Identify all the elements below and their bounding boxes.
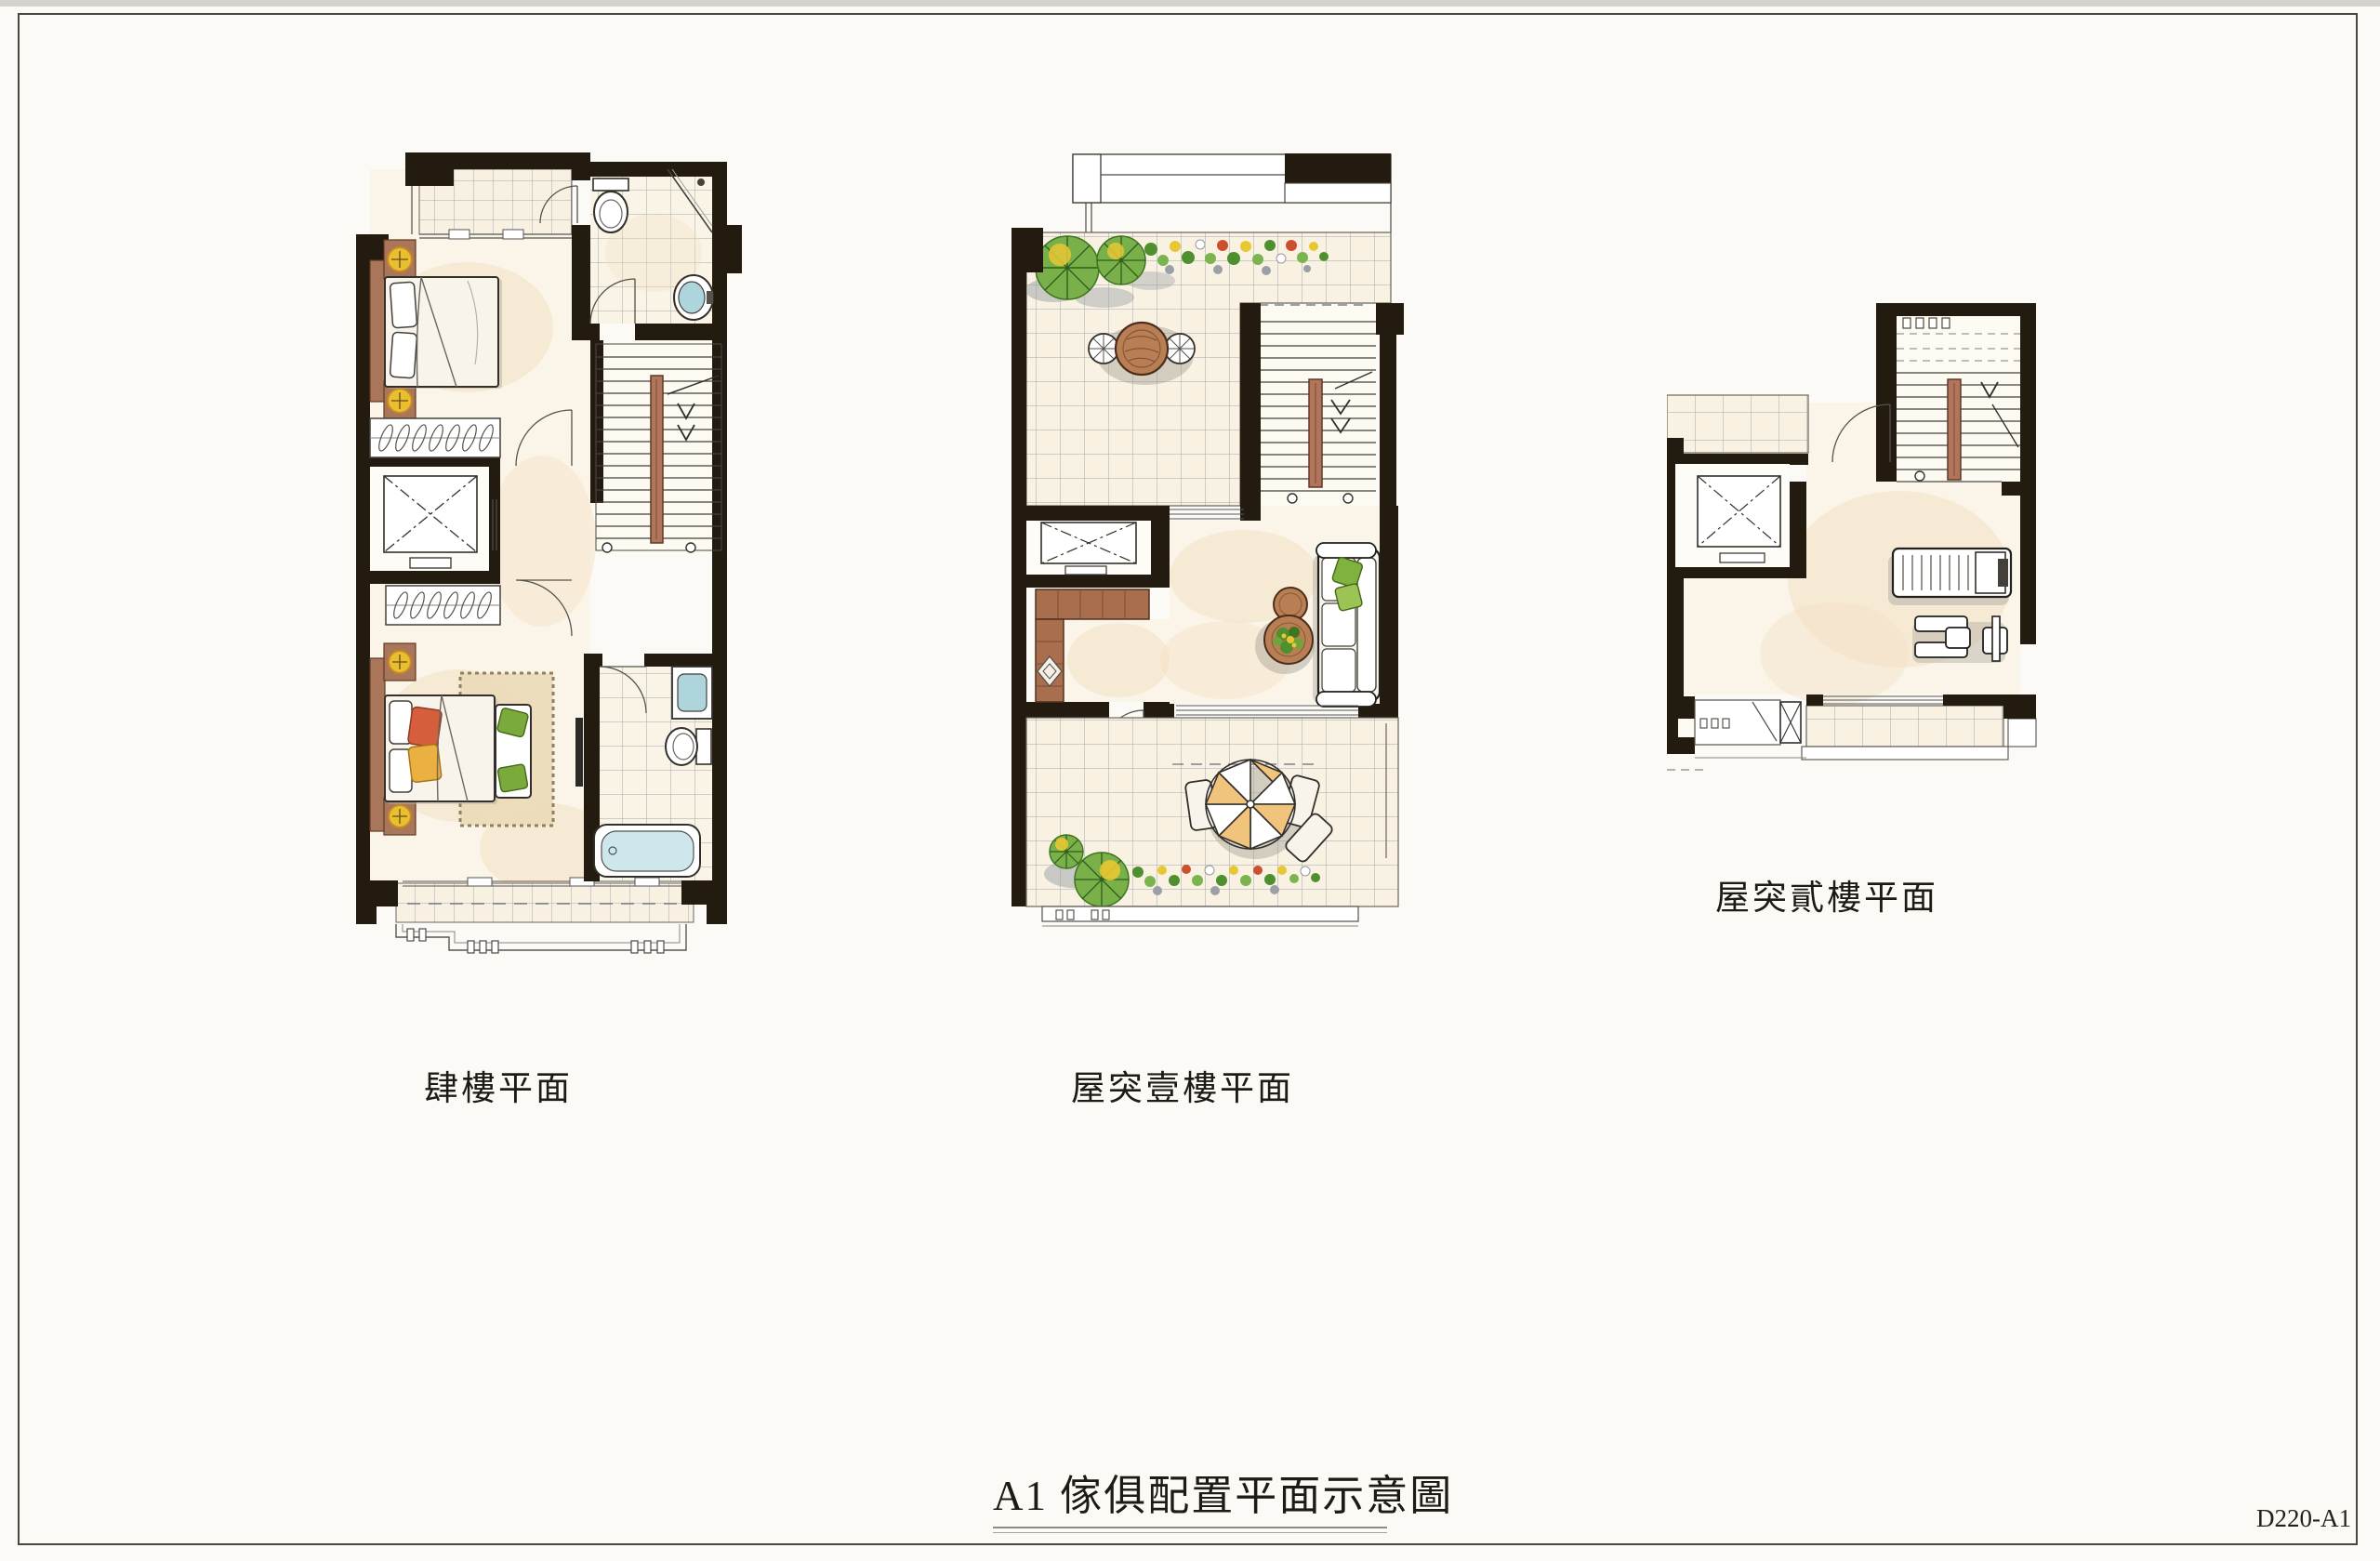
sofa-icon — [1313, 543, 1380, 707]
plan-label-roof2: 屋突貳樓平面 — [1655, 869, 1999, 919]
roof-terrace-left — [1667, 395, 1808, 453]
scan-artifact-strip — [0, 0, 2380, 7]
pillow-green — [1334, 583, 1362, 611]
bench — [496, 705, 531, 798]
closet-icon — [370, 418, 500, 457]
pillow-red — [407, 707, 442, 747]
roof-parapet-bottom — [1042, 906, 1358, 926]
scanned-floorplan-sheet: { "page": { "background": "#fbfaf6", "fr… — [0, 0, 2380, 1561]
floorplan-4f — [356, 141, 756, 967]
living-room — [1160, 506, 1380, 707]
sheet-title-block: A1 傢俱配置平面示意圖 — [993, 1462, 1387, 1533]
toilet-icon — [593, 179, 628, 232]
closet-icon — [386, 586, 500, 625]
stairs-icon — [1897, 316, 2020, 482]
plan-label-4f: 肆樓平面 — [359, 1060, 638, 1110]
elevator-icon — [370, 467, 496, 571]
headboard — [370, 658, 385, 831]
elevator-icon — [1026, 521, 1151, 575]
sliding-door — [1170, 509, 1244, 519]
title-underline — [993, 1527, 1387, 1533]
vanity-sink-icon — [672, 667, 712, 719]
pillow-yellow — [408, 744, 442, 783]
tv-icon — [575, 718, 583, 787]
treadmill-icon — [1888, 549, 2011, 605]
plan-label-roof1: 屋突壹樓平面 — [1011, 1060, 1355, 1110]
bed — [385, 277, 502, 389]
bed — [385, 695, 497, 804]
sink-icon — [674, 275, 713, 320]
bathtub-icon — [594, 825, 700, 877]
floorplan-roof2 — [1667, 300, 2085, 793]
sheet-title: A1 傢俱配置平面示意圖 — [993, 1462, 1387, 1522]
drawing-number: D220-A1 — [2235, 1504, 2351, 1533]
elevator-icon — [1675, 464, 1790, 567]
balcony-bottom — [396, 878, 694, 953]
roof-terrace-bottom — [1802, 706, 2036, 760]
toilet-icon — [666, 728, 711, 765]
floorplan-roof1 — [1011, 139, 1421, 967]
roof-parapet — [1073, 153, 1391, 232]
stairs-icon — [1240, 303, 1404, 521]
exercise-bike-icon — [1912, 616, 2007, 663]
headboard — [370, 260, 385, 402]
hallway — [1064, 619, 1170, 702]
